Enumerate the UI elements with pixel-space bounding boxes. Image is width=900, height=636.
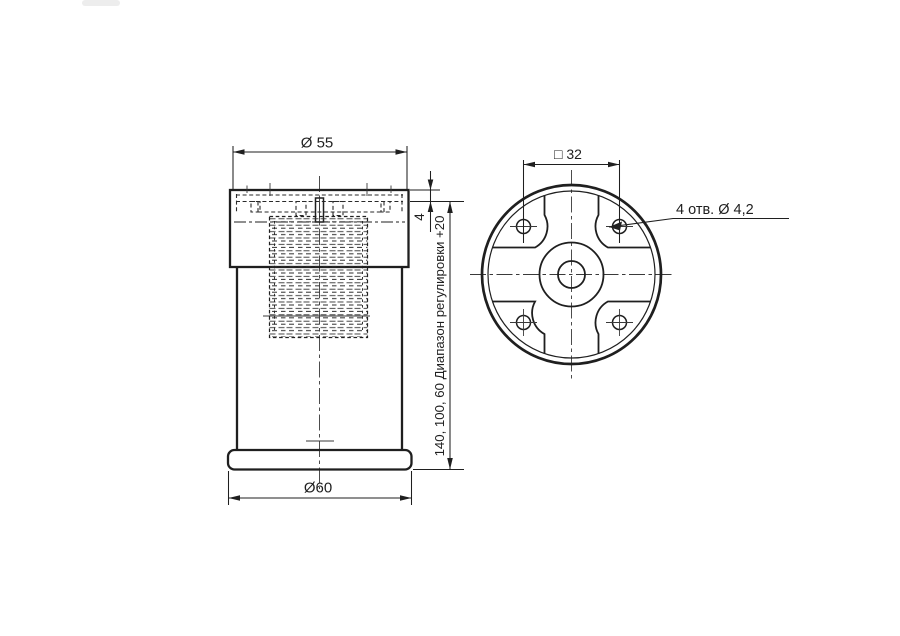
holes-callout-label: 4 отв. Ø 4,2 bbox=[676, 202, 754, 218]
dim-diameter-top-label: Ø 55 bbox=[301, 135, 334, 152]
dim-height-range-label: 140, 100, 60 Диапазон регулировки +20 bbox=[432, 216, 447, 457]
dim-diameter-bottom: Ø60 bbox=[229, 471, 412, 505]
hidden-threaded-stud bbox=[270, 217, 368, 338]
technical-drawing: Ø 55 Ø60 4 140, 100, 60 Диапазон регулир… bbox=[0, 0, 900, 636]
top-view: □ 32 4 отв. Ø 4,2 bbox=[470, 146, 789, 380]
scan-artifact bbox=[82, 0, 120, 6]
dim-height-range: 140, 100, 60 Диапазон регулировки +20 bbox=[413, 202, 464, 470]
dim-diameter-bottom-label: Ø60 bbox=[304, 480, 332, 497]
dim-square-label: □ 32 bbox=[554, 146, 582, 162]
side-view: Ø 55 Ø60 4 140, 100, 60 Диапазон регулир… bbox=[228, 135, 464, 506]
holes-callout: 4 отв. Ø 4,2 bbox=[609, 202, 789, 231]
dim-plate-thickness-label: 4 bbox=[412, 213, 427, 221]
dim-diameter-top: Ø 55 bbox=[233, 135, 407, 190]
